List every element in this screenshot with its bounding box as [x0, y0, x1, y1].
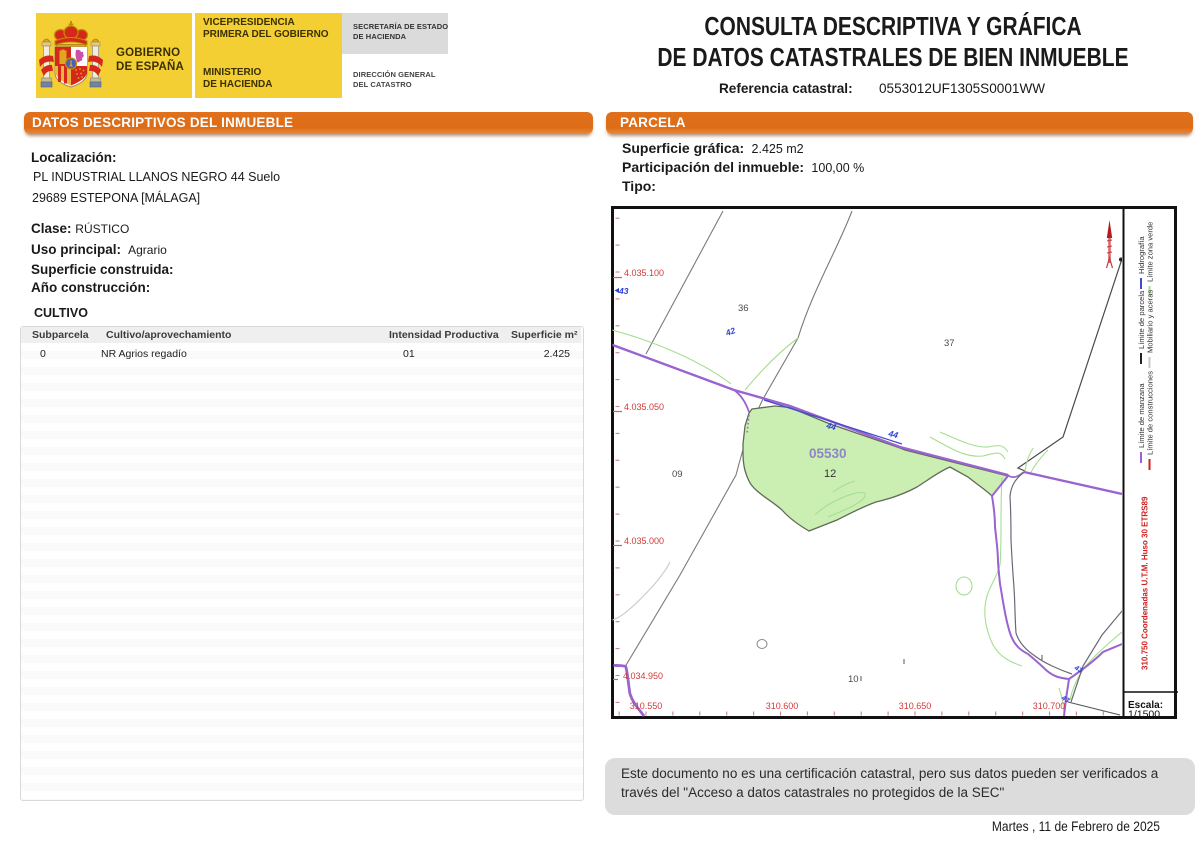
- svg-text:310.600: 310.600: [766, 701, 799, 711]
- svg-text:37: 37: [944, 338, 955, 349]
- svg-text:43: 43: [618, 286, 629, 296]
- svg-text:42: 42: [723, 325, 737, 338]
- svg-text:4.035.050: 4.035.050: [624, 402, 664, 412]
- svg-text:Límite de construcciones: Límite de construcciones: [1146, 371, 1155, 455]
- svg-text:09: 09: [672, 469, 683, 480]
- svg-text:4.035.100: 4.035.100: [624, 268, 664, 278]
- svg-text:4.034.950: 4.034.950: [623, 671, 663, 681]
- svg-text:1/1500: 1/1500: [1128, 709, 1160, 721]
- svg-text:10: 10: [848, 674, 859, 685]
- svg-text:4.035.000: 4.035.000: [624, 536, 664, 546]
- svg-text:36: 36: [738, 303, 749, 314]
- svg-text:Límite zona verde: Límite zona verde: [1146, 222, 1155, 282]
- svg-text:310.750 Coordenadas U.T.M. Hus: 310.750 Coordenadas U.T.M. Huso 30 ETRS8…: [1141, 496, 1150, 670]
- svg-text:44: 44: [887, 428, 900, 440]
- svg-text:310.650: 310.650: [899, 701, 932, 711]
- svg-text:12: 12: [824, 468, 836, 480]
- svg-text:310.700: 310.700: [1033, 701, 1066, 711]
- svg-text:310.550: 310.550: [630, 701, 663, 711]
- svg-text:Mobiliario y aceras: Mobiliario y aceras: [1146, 289, 1155, 353]
- svg-text:43: 43: [1072, 664, 1083, 675]
- svg-text:05530: 05530: [809, 446, 847, 461]
